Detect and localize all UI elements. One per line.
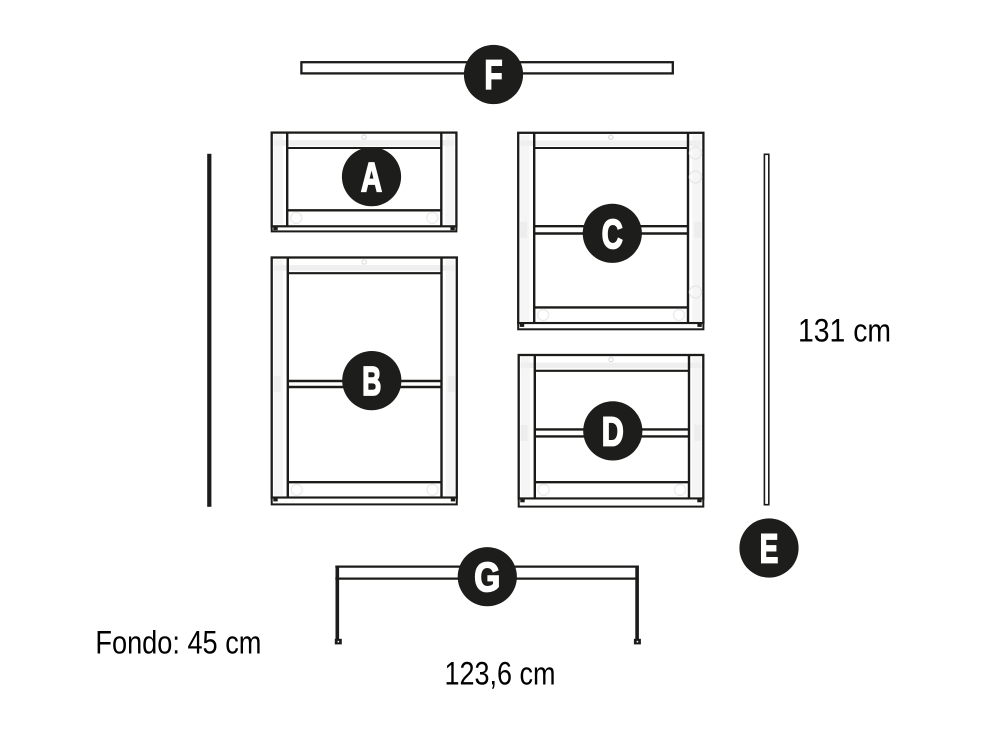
svg-text:G: G bbox=[474, 554, 500, 600]
svg-text:131 cm: 131 cm bbox=[798, 313, 891, 349]
svg-text:C: C bbox=[602, 211, 623, 257]
svg-text:E: E bbox=[760, 526, 779, 572]
svg-text:123,6 cm: 123,6 cm bbox=[445, 656, 556, 692]
svg-text:Fondo: 45 cm: Fondo: 45 cm bbox=[95, 625, 261, 661]
svg-text:B: B bbox=[362, 358, 381, 404]
svg-text:F: F bbox=[485, 52, 503, 98]
svg-text:D: D bbox=[602, 408, 624, 454]
svg-text:A: A bbox=[361, 154, 382, 200]
